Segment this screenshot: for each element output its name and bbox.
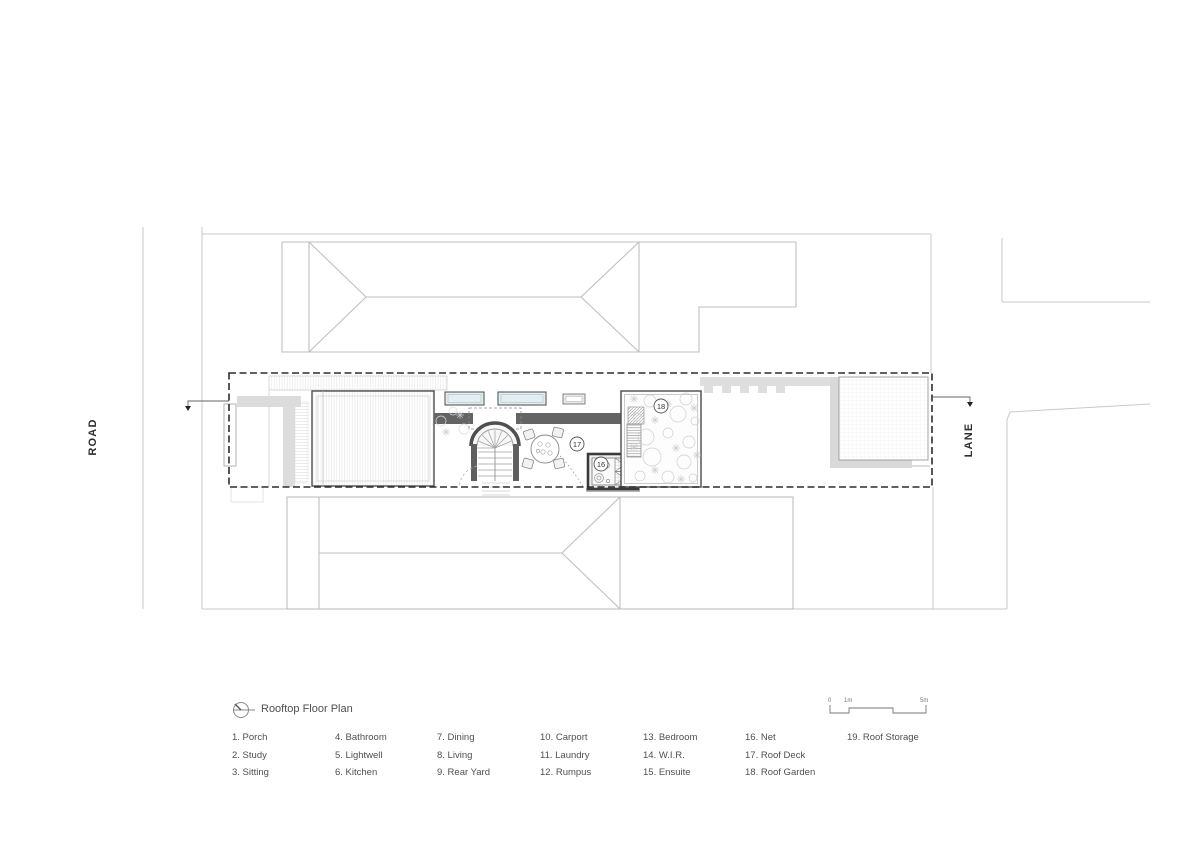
legend-item: 2. Study <box>232 751 269 761</box>
rear-yard-edge <box>700 377 839 393</box>
skylights <box>445 392 585 405</box>
legend-item: 18. Roof Garden <box>745 768 815 778</box>
legend-column-7: 19. Roof Storage <box>847 733 919 751</box>
plan-title-symbol <box>234 703 256 718</box>
floor-plan-canvas: 17 16 18 0 1m 5m <box>0 0 1200 849</box>
legend-column-6: 16. Net 17. Roof Deck 18. Roof Garden <box>745 733 815 786</box>
legend-item: 4. Bathroom <box>335 733 387 743</box>
net-label: 16 <box>597 460 605 469</box>
legend-item: 9. Rear Yard <box>437 768 490 778</box>
section-arrow-icon <box>967 402 973 407</box>
road-label: ROAD <box>87 418 99 455</box>
lane-label: LANE <box>963 423 975 458</box>
legend-item: 19. Roof Storage <box>847 733 919 743</box>
roof-storage <box>830 377 930 468</box>
legend-item: 5. Lightwell <box>335 751 387 761</box>
roof-deck-label: 17 <box>573 440 581 449</box>
scale-tick-0: 0 <box>828 698 832 704</box>
parapet-walls <box>434 413 628 424</box>
main-roof-panel <box>312 391 434 486</box>
legend-item: 10. Carport <box>540 733 591 743</box>
legend-column-3: 7. Dining 8. Living 9. Rear Yard <box>437 733 490 786</box>
legend-item: 3. Sitting <box>232 768 269 778</box>
legend-item: 12. Rumpus <box>540 768 591 778</box>
legend-item: 1. Porch <box>232 733 269 743</box>
scale-tick-1m: 1m <box>844 698 852 704</box>
legend-item: 11. Laundry <box>540 751 591 761</box>
north-needle-icon <box>235 704 241 710</box>
legend-item: 7. Dining <box>437 733 490 743</box>
legend-column-1: 1. Porch 2. Study 3. Sitting <box>232 733 269 786</box>
legend-column-5: 13. Bedroom 14. W.I.R. 15. Ensuite <box>643 733 697 786</box>
floor-plan-sheet: 17 16 18 0 1m 5m ROAD LANE Rooftop Floor… <box>0 0 1200 849</box>
legend-item: 13. Bedroom <box>643 733 697 743</box>
plan-title: Rooftop Floor Plan <box>261 703 353 715</box>
top-neighbor-roof <box>282 242 796 352</box>
legend-item: 8. Living <box>437 751 490 761</box>
legend-item: 14. W.I.R. <box>643 751 697 761</box>
left-walls <box>224 396 308 487</box>
roof-garden-label: 18 <box>657 402 665 411</box>
legend-item: 6. Kitchen <box>335 768 387 778</box>
legend-item: 15. Ensuite <box>643 768 697 778</box>
scale-bar: 0 1m 5m <box>828 698 928 713</box>
bottom-neighbor-roof <box>287 497 793 609</box>
section-arrow-icon <box>185 406 191 411</box>
scale-tick-5m: 5m <box>920 698 928 704</box>
dining-table-set <box>522 427 583 487</box>
legend-column-2: 4. Bathroom 5. Lightwell 6. Kitchen <box>335 733 387 786</box>
building-rooftop: 17 16 18 <box>224 376 930 502</box>
legend-item: 16. Net <box>745 733 815 743</box>
legend-item: 17. Roof Deck <box>745 751 815 761</box>
legend-column-4: 10. Carport 11. Laundry 12. Rumpus <box>540 733 591 786</box>
